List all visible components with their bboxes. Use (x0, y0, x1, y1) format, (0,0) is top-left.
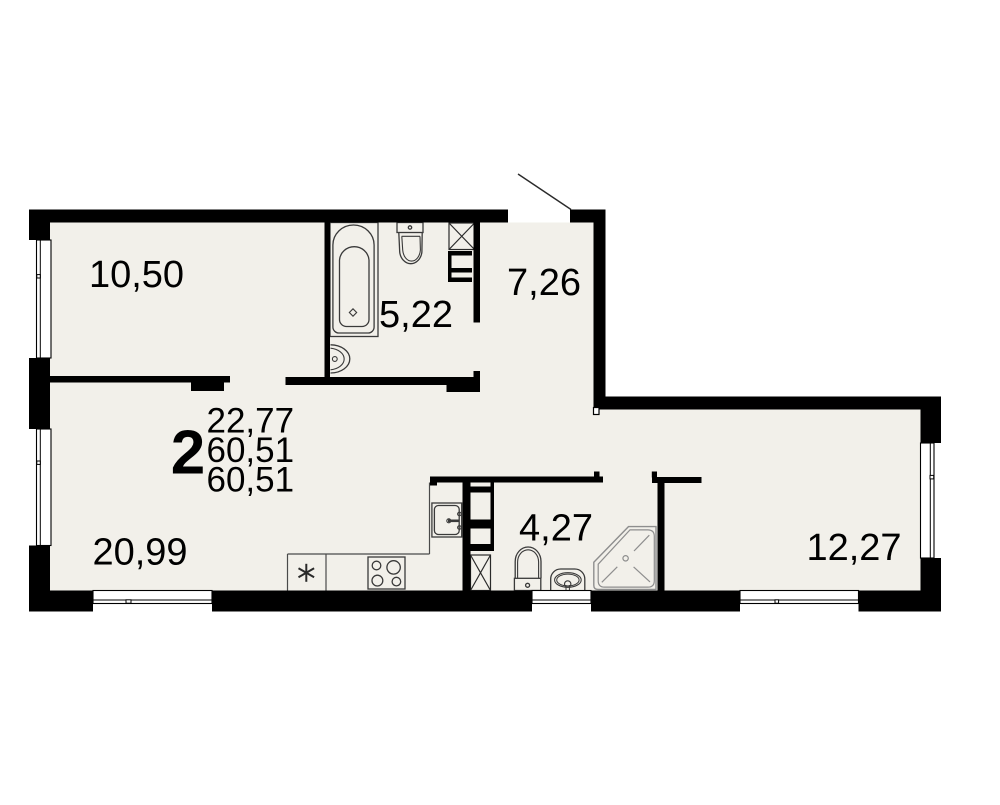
svg-text:10,50: 10,50 (89, 254, 184, 296)
svg-text:20,99: 20,99 (92, 532, 187, 574)
svg-text:2: 2 (171, 419, 205, 488)
svg-text:12,27: 12,27 (806, 527, 901, 569)
svg-text:7,26: 7,26 (507, 262, 581, 304)
svg-text:4,27: 4,27 (519, 508, 593, 550)
svg-text:60,51: 60,51 (207, 461, 295, 500)
svg-text:5,22: 5,22 (379, 294, 453, 336)
